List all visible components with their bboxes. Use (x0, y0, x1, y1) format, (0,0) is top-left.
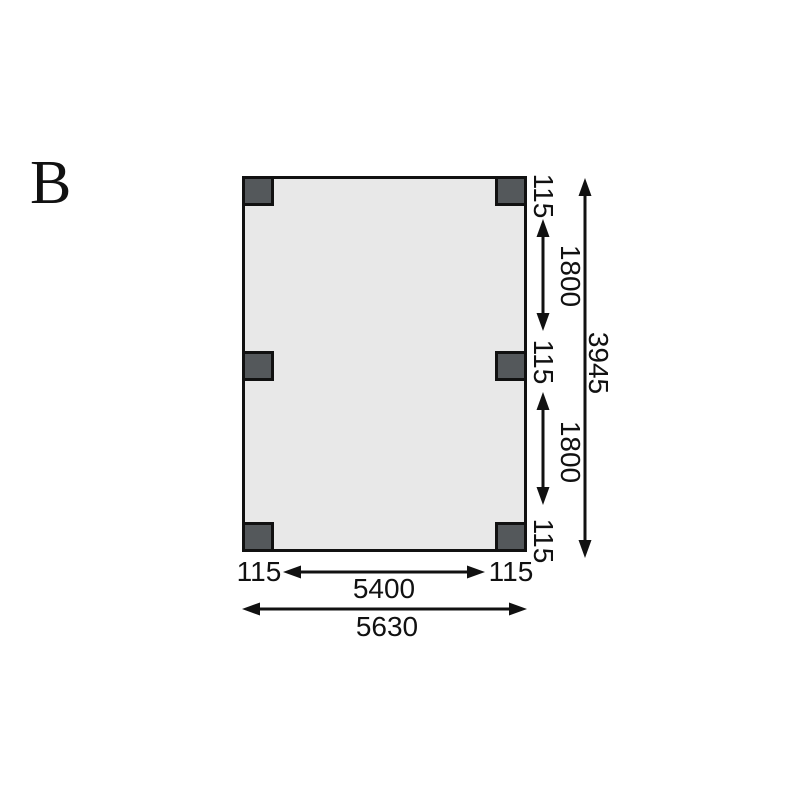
dim-right-middle-offset: 115 (529, 327, 557, 397)
post-middle-right (495, 351, 527, 381)
post-top-right (495, 176, 527, 206)
variant-label: B (30, 152, 71, 214)
arrow-right-upper-span (537, 219, 550, 331)
dim-right-total: 3945 (584, 318, 612, 408)
plan-outline (242, 176, 527, 552)
post-bottom-right (495, 522, 527, 552)
post-bottom-left (242, 522, 274, 552)
dim-right-lower-span: 1800 (556, 407, 584, 497)
dim-right-upper-span: 1800 (556, 231, 584, 321)
arrow-right-lower-span (537, 392, 550, 505)
dim-bottom-span: 5400 (324, 575, 444, 603)
post-middle-left (242, 351, 274, 381)
dim-bottom-left-offset: 115 (224, 558, 294, 586)
post-top-left (242, 176, 274, 206)
dim-bottom-total: 5630 (327, 613, 447, 641)
dim-right-bottom-offset: 115 (529, 506, 557, 576)
dim-right-top-offset: 115 (529, 161, 557, 231)
floor-plan-diagram: B (0, 0, 800, 800)
